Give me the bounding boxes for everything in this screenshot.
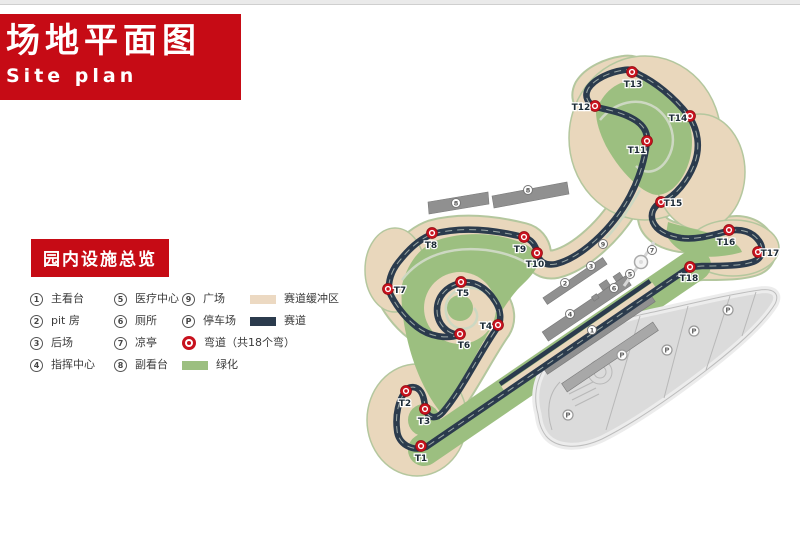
facility-marker-8: 8 — [524, 186, 533, 195]
facility-marker-number: 7 — [650, 246, 655, 254]
turn-label-T4: T4 — [480, 322, 492, 332]
turn-label-T5: T5 — [457, 289, 469, 299]
facility-marker-7: 7 — [648, 246, 657, 255]
turn-marker-T7: T7 — [383, 284, 407, 297]
facility-marker-number: 4 — [568, 310, 573, 318]
turn-marker-T17: T17 — [753, 247, 780, 260]
parking-marker-letter: P — [664, 347, 669, 355]
facility-marker-4: 4 — [566, 310, 575, 319]
turn-label-T6: T6 — [458, 341, 470, 351]
facility-marker-6: 6 — [610, 284, 619, 293]
turn-label-T2: T2 — [399, 399, 411, 409]
turn-label-T12: T12 — [572, 103, 591, 113]
facility-marker-8: 8 — [452, 199, 461, 208]
turn-marker-T15: T15 — [656, 197, 683, 210]
facility-marker-number: 8 — [454, 199, 459, 207]
turn-label-T3: T3 — [418, 417, 430, 427]
turn-label-T9: T9 — [514, 245, 526, 255]
turn-label-T15: T15 — [664, 199, 683, 209]
facility-marker-9: 9 — [599, 240, 608, 249]
parking-lot-marker: P — [689, 326, 699, 336]
turn-label-T16: T16 — [717, 238, 736, 248]
facility-marker-number: 6 — [612, 284, 617, 292]
parking-marker-letter: P — [725, 307, 730, 315]
parking-lot-marker: P — [563, 410, 573, 420]
parking-marker-letter: P — [565, 412, 570, 420]
turn-label-T13: T13 — [624, 80, 643, 90]
turn-label-T10: T10 — [526, 260, 545, 270]
facility-marker-number: 3 — [589, 262, 594, 270]
turn-marker-T12: T12 — [572, 101, 601, 114]
turn-label-T8: T8 — [425, 241, 437, 251]
facility-marker-3: 3 — [587, 262, 596, 271]
facility-marker-2: 2 — [561, 279, 570, 288]
turn-label-T14: T14 — [669, 114, 688, 124]
turn-label-T18: T18 — [680, 274, 699, 284]
facility-marker-1: 1 — [588, 326, 597, 335]
turn-marker-T4: T4 — [480, 320, 504, 333]
parking-lot-marker: P — [723, 305, 733, 315]
turn-label-T17: T17 — [761, 249, 780, 259]
facility-marker-number: 1 — [590, 326, 595, 334]
turn-label-T11: T11 — [628, 146, 647, 156]
turn-label-T1: T1 — [415, 454, 427, 464]
facility-marker-number: 8 — [526, 186, 531, 194]
parking-marker-letter: P — [619, 352, 624, 360]
facility-marker-5: 5 — [626, 270, 635, 279]
parking-lot-marker: P — [662, 345, 672, 355]
site-plan-map: 8893562417 PPPPP T1T2T3T4T5T6T7T8T9T10T1… — [0, 0, 800, 533]
facility-marker-number: 9 — [601, 240, 606, 248]
turn-label-T7: T7 — [394, 286, 406, 296]
parking-marker-letter: P — [691, 328, 696, 336]
facility-marker-number: 5 — [628, 270, 633, 278]
facility-marker-number: 2 — [563, 279, 568, 287]
parking-lot-marker: P — [617, 350, 627, 360]
